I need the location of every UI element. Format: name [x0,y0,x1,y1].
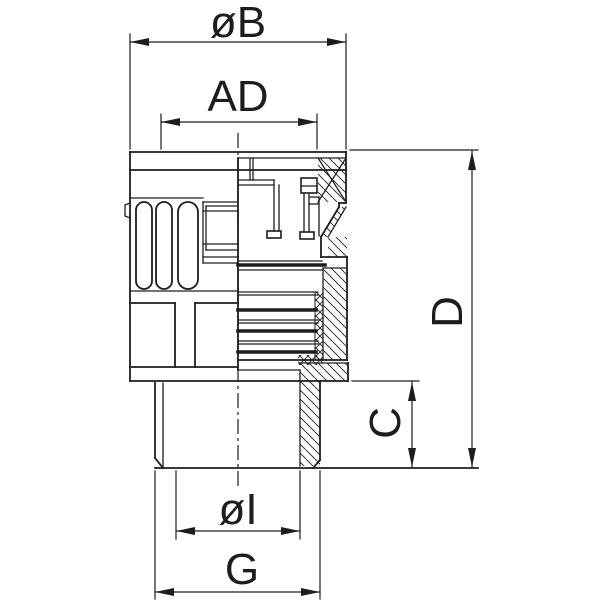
label-cap-inner-width: AD [207,72,268,121]
label-inner-diameter: øI [218,485,257,534]
label-outer-diameter: øB [210,0,266,47]
latch-window-outside [203,202,238,263]
label-overall-height: D [423,296,472,328]
dimension-spigot-height: C [352,381,419,467]
label-thread-size: G [225,545,259,594]
technical-drawing-canvas: øB AD D C øI G [0,0,600,600]
fitting-section-drawing: øB AD D C øI G [0,0,600,600]
thread-section [238,261,325,360]
dimension-cap-inner-width: AD [161,72,317,149]
hex-flats [130,303,238,367]
vent-slots [136,202,198,289]
label-spigot-height: C [361,407,410,439]
